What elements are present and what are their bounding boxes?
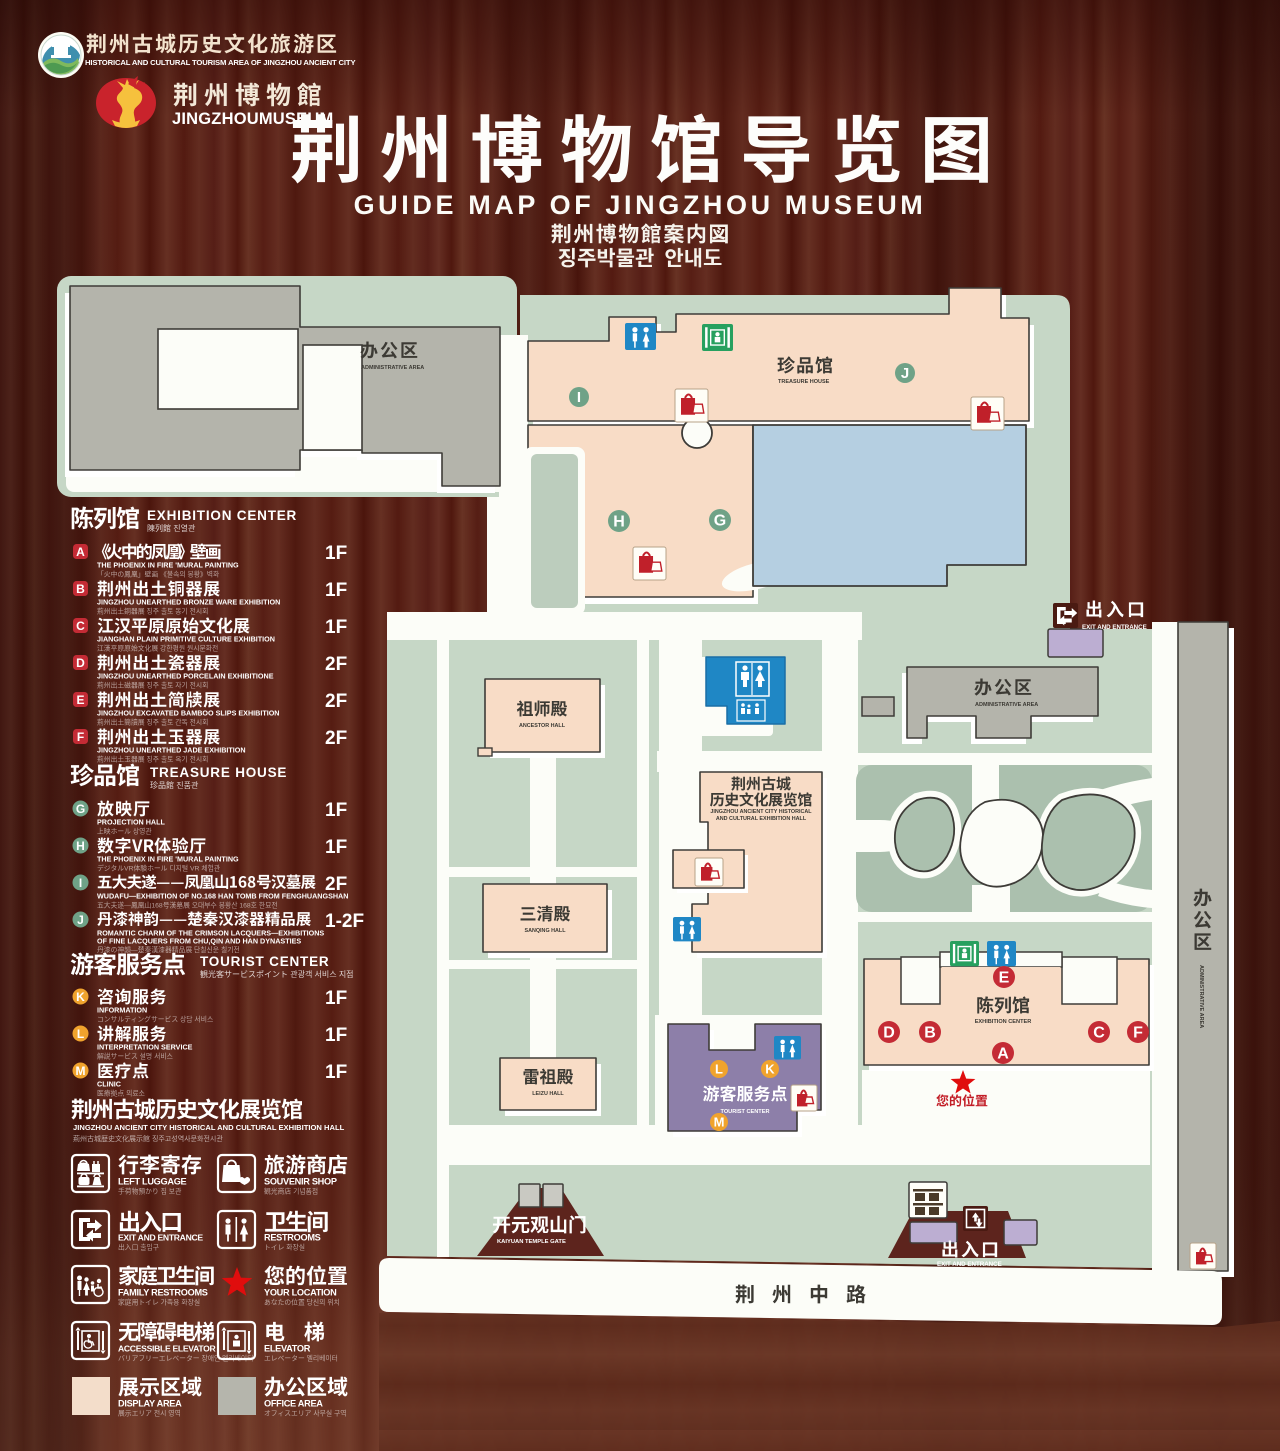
svg-text:EXIT AND ENTRANCE: EXIT AND ENTRANCE [937, 1261, 1002, 1268]
svg-text:JINGZHOU ANCIENT CITY HISTORIC: JINGZHOU ANCIENT CITY HISTORICAL AND CUL… [73, 1123, 345, 1132]
svg-text:珍品館 진품관: 珍品館 진품관 [150, 780, 199, 790]
svg-text:L: L [77, 1027, 84, 1041]
svg-text:2F: 2F [325, 691, 347, 712]
svg-text:JINGZHOU EXCAVATED BAMBOO SLIP: JINGZHOU EXCAVATED BAMBOO SLIPS EXHIBITI… [97, 709, 280, 718]
svg-text:ELEVATOR: ELEVATOR [264, 1344, 311, 1354]
svg-text:1F: 1F [325, 617, 347, 638]
svg-text:DISPLAY AREA: DISPLAY AREA [118, 1399, 182, 1409]
svg-text:SANQING HALL: SANQING HALL [524, 928, 566, 934]
svg-text:I: I [577, 389, 581, 406]
svg-text:1F: 1F [325, 988, 347, 1009]
svg-text:2F: 2F [325, 654, 347, 675]
svg-text:ADMINISTRATIVE AREA: ADMINISTRATIVE AREA [361, 365, 424, 371]
svg-text:1F: 1F [325, 800, 347, 821]
svg-text:ADMINISTRATIVE AREA: ADMINISTRATIVE AREA [975, 702, 1038, 708]
svg-text:荊州出土銅器展 징주 출토 동기 전시회: 荊州出土銅器展 징주 출토 동기 전시회 [97, 607, 208, 616]
svg-text:丹漆の神韻—楚秦漢漆器精品展 단칠신운 칠기전: 丹漆の神韻—楚秦漢漆器精品展 단칠신운 칠기전 [97, 945, 240, 954]
svg-text:家庭用トイレ 가족용 화장실: 家庭用トイレ 가족용 화장실 [118, 1298, 200, 1307]
svg-text:JINGZHOU UNEARTHED BRONZE WARE: JINGZHOU UNEARTHED BRONZE WARE EXHIBITIO… [97, 598, 280, 607]
svg-text:INTERPRETATION SERVICE: INTERPRETATION SERVICE [97, 1043, 193, 1052]
svg-text:上映ホール 상영관: 上映ホール 상영관 [97, 827, 152, 836]
svg-text:INFORMATION: INFORMATION [97, 1006, 147, 1015]
svg-text:HISTORICAL AND CULTURAL TOURIS: HISTORICAL AND CULTURAL TOURISM AREA OF … [85, 58, 355, 67]
svg-text:OFFICE AREA: OFFICE AREA [264, 1399, 323, 1409]
svg-text:EXIT AND ENTRANCE: EXIT AND ENTRANCE [118, 1233, 203, 1243]
svg-text:2F: 2F [325, 728, 347, 749]
svg-text:KAIYUAN TEMPLE GATE: KAIYUAN TEMPLE GATE [497, 1239, 566, 1245]
svg-text:RESTROOMS: RESTROOMS [264, 1233, 321, 1243]
svg-text:JINGZHOU UNEARTHED JADE EXHIBI: JINGZHOU UNEARTHED JADE EXHIBITION [97, 746, 246, 755]
svg-text:YOUR LOCATION: YOUR LOCATION [264, 1288, 337, 1298]
svg-text:TREASURE HOUSE: TREASURE HOUSE [778, 379, 830, 385]
svg-text:観光商店 기념품점: 観光商店 기념품점 [264, 1187, 318, 1196]
svg-text:SOUVENIR SHOP: SOUVENIR SHOP [264, 1177, 337, 1187]
svg-text:THE PHOENIX IN FIRE 'MURAL PAI: THE PHOENIX IN FIRE 'MURAL PAINTING [97, 855, 239, 864]
svg-text:FAMILY RESTROOMS: FAMILY RESTROOMS [118, 1288, 208, 1298]
svg-text:荊州出土玉器展 징주 출토 옥기 전시회: 荊州出土玉器展 징주 출토 옥기 전시회 [97, 755, 208, 764]
svg-text:JINGZHOU UNEARTHED PORCELAIN E: JINGZHOU UNEARTHED PORCELAIN EXHIBITIONE [97, 672, 274, 681]
svg-text:ACCESSIBLE ELEVATOR: ACCESSIBLE ELEVATOR [118, 1344, 217, 1354]
svg-text:OF FINE LACQUERS FROM CHU,QIN: OF FINE LACQUERS FROM CHU,QIN AND HAN DY… [97, 937, 301, 946]
svg-text:展示エリア 전시 영역: 展示エリア 전시 영역 [118, 1409, 181, 1418]
svg-text:荊州出土簡牘展 징주 출토 간독 전시회: 荊州出土簡牘展 징주 출토 간독 전시회 [97, 718, 208, 727]
svg-text:A: A [76, 545, 85, 559]
svg-text:陳列館 진열관: 陳列館 진열관 [147, 523, 196, 533]
svg-text:手荷物預かり 짐 보관: 手荷物預かり 짐 보관 [118, 1187, 181, 1196]
svg-text:EXHIBITION CENTER: EXHIBITION CENTER [147, 508, 297, 523]
svg-text:1F: 1F [325, 580, 347, 601]
svg-text:THE PHOENIX IN FIRE 'MURAL PAI: THE PHOENIX IN FIRE 'MURAL PAINTING [97, 561, 239, 570]
svg-text:出入口 출입구: 出入口 출입구 [118, 1243, 159, 1252]
svg-text:A: A [997, 1046, 1009, 1063]
svg-text:ANCESTOR HALL: ANCESTOR HALL [519, 723, 566, 729]
svg-text:荊州古城歴史文化展示館 징주고성역사문화전시관: 荊州古城歴史文化展示館 징주고성역사문화전시관 [73, 1134, 223, 1143]
svg-text:JIANGHAN PLAIN PRIMITIVE CULTU: JIANGHAN PLAIN PRIMITIVE CULTURE EXHIBIT… [97, 635, 275, 644]
svg-text:G: G [76, 802, 85, 816]
svg-text:B: B [76, 582, 85, 596]
svg-text:オフィスエリア 사무실 구역: オフィスエリア 사무실 구역 [264, 1409, 346, 1418]
svg-text:デジタルVR体験ホール 디지털 VR 체험관: デジタルVR体験ホール 디지털 VR 체험관 [97, 864, 220, 873]
svg-text:解説サービス 설명 서비스: 解説サービス 설명 서비스 [97, 1052, 173, 1061]
svg-text:EXHIBITION CENTER: EXHIBITION CENTER [975, 1019, 1032, 1025]
svg-text:五大夫遂—鳳凰山168号漢墓展 오대부수 봉황산 168호: 五大夫遂—鳳凰山168号漢墓展 오대부수 봉황산 168호 한묘전 [97, 901, 278, 910]
svg-text:G: G [714, 513, 726, 530]
svg-text:C: C [76, 619, 85, 633]
svg-text:H: H [613, 514, 625, 531]
svg-text:I: I [79, 876, 82, 890]
svg-text:J: J [77, 913, 84, 927]
svg-text:C: C [1093, 1025, 1105, 1042]
svg-text:JINGZHOU ANCIENT CITY HISTORIC: JINGZHOU ANCIENT CITY HISTORICAL [710, 809, 812, 815]
svg-text:E: E [76, 693, 84, 707]
svg-text:1F: 1F [325, 1062, 347, 1083]
svg-text:E: E [999, 970, 1010, 987]
svg-text:江漢平原原始文化展 강한평원 원시문화전: 江漢平原原始文化展 강한평원 원시문화전 [97, 644, 218, 653]
svg-text:コンサルティングサービス 상담 서비스: コンサルティングサービス 상담 서비스 [97, 1015, 213, 1024]
svg-text:WUDAFU—EXHIBITION OF NO.168 HA: WUDAFU—EXHIBITION OF NO.168 HAN TOMB FRO… [97, 892, 348, 901]
svg-text:PROJECTION HALL: PROJECTION HALL [97, 818, 165, 827]
svg-text:1F: 1F [325, 837, 347, 858]
svg-text:トイレ 화장실: トイレ 화장실 [264, 1243, 305, 1252]
svg-text:荊州出土磁器展 징주 출토 자기 전시회: 荊州出土磁器展 징주 출토 자기 전시회 [97, 681, 208, 690]
svg-text:あなたの位置 당신의 위치: あなたの位置 당신의 위치 [264, 1298, 340, 1307]
svg-text:1-2F: 1-2F [325, 911, 364, 932]
svg-text:K: K [76, 990, 85, 1004]
svg-text:M: M [76, 1064, 86, 1078]
svg-text:H: H [76, 839, 85, 853]
svg-text:1F: 1F [325, 543, 347, 564]
svg-text:M: M [714, 1115, 725, 1130]
svg-text:L: L [715, 1062, 723, 1077]
svg-text:EXIT AND ENTRANCE: EXIT AND ENTRANCE [1082, 624, 1147, 631]
svg-text:ADMINISTRATIVE AREA: ADMINISTRATIVE AREA [1198, 965, 1204, 1028]
svg-text:「火中の鳳凰」壁画 《불속의 봉황》벽화: 「火中の鳳凰」壁画 《불속의 봉황》벽화 [97, 570, 220, 579]
svg-text:LEFT LUGGAGE: LEFT LUGGAGE [118, 1177, 187, 1187]
svg-text:F: F [77, 730, 84, 744]
svg-text:TOURIST CENTER: TOURIST CENTER [721, 1109, 770, 1115]
svg-text:GUIDE MAP OF JINGZHOU MUSEUM: GUIDE MAP OF JINGZHOU MUSEUM [354, 190, 927, 220]
svg-text:K: K [765, 1062, 775, 1077]
svg-text:医療拠点 의료소: 医療拠点 의료소 [97, 1089, 145, 1098]
svg-text:D: D [883, 1025, 895, 1042]
svg-text:J: J [901, 365, 909, 382]
svg-text:1F: 1F [325, 1025, 347, 1046]
svg-text:CLINIC: CLINIC [97, 1080, 121, 1089]
svg-text:TOURIST CENTER: TOURIST CENTER [200, 954, 329, 969]
svg-text:F: F [1133, 1025, 1143, 1042]
svg-text:観光客サービスポイント 관광객 서비스 지점: 観光客サービスポイント 관광객 서비스 지점 [200, 969, 354, 979]
svg-text:LEIZU HALL: LEIZU HALL [532, 1091, 564, 1097]
svg-text:D: D [76, 656, 85, 670]
svg-text:エレベーター 엘리베이터: エレベーター 엘리베이터 [264, 1354, 338, 1363]
svg-text:AND CULTURAL EXHIBITION HALL: AND CULTURAL EXHIBITION HALL [716, 816, 807, 822]
svg-text:TREASURE HOUSE: TREASURE HOUSE [150, 765, 287, 780]
svg-text:B: B [924, 1025, 936, 1042]
